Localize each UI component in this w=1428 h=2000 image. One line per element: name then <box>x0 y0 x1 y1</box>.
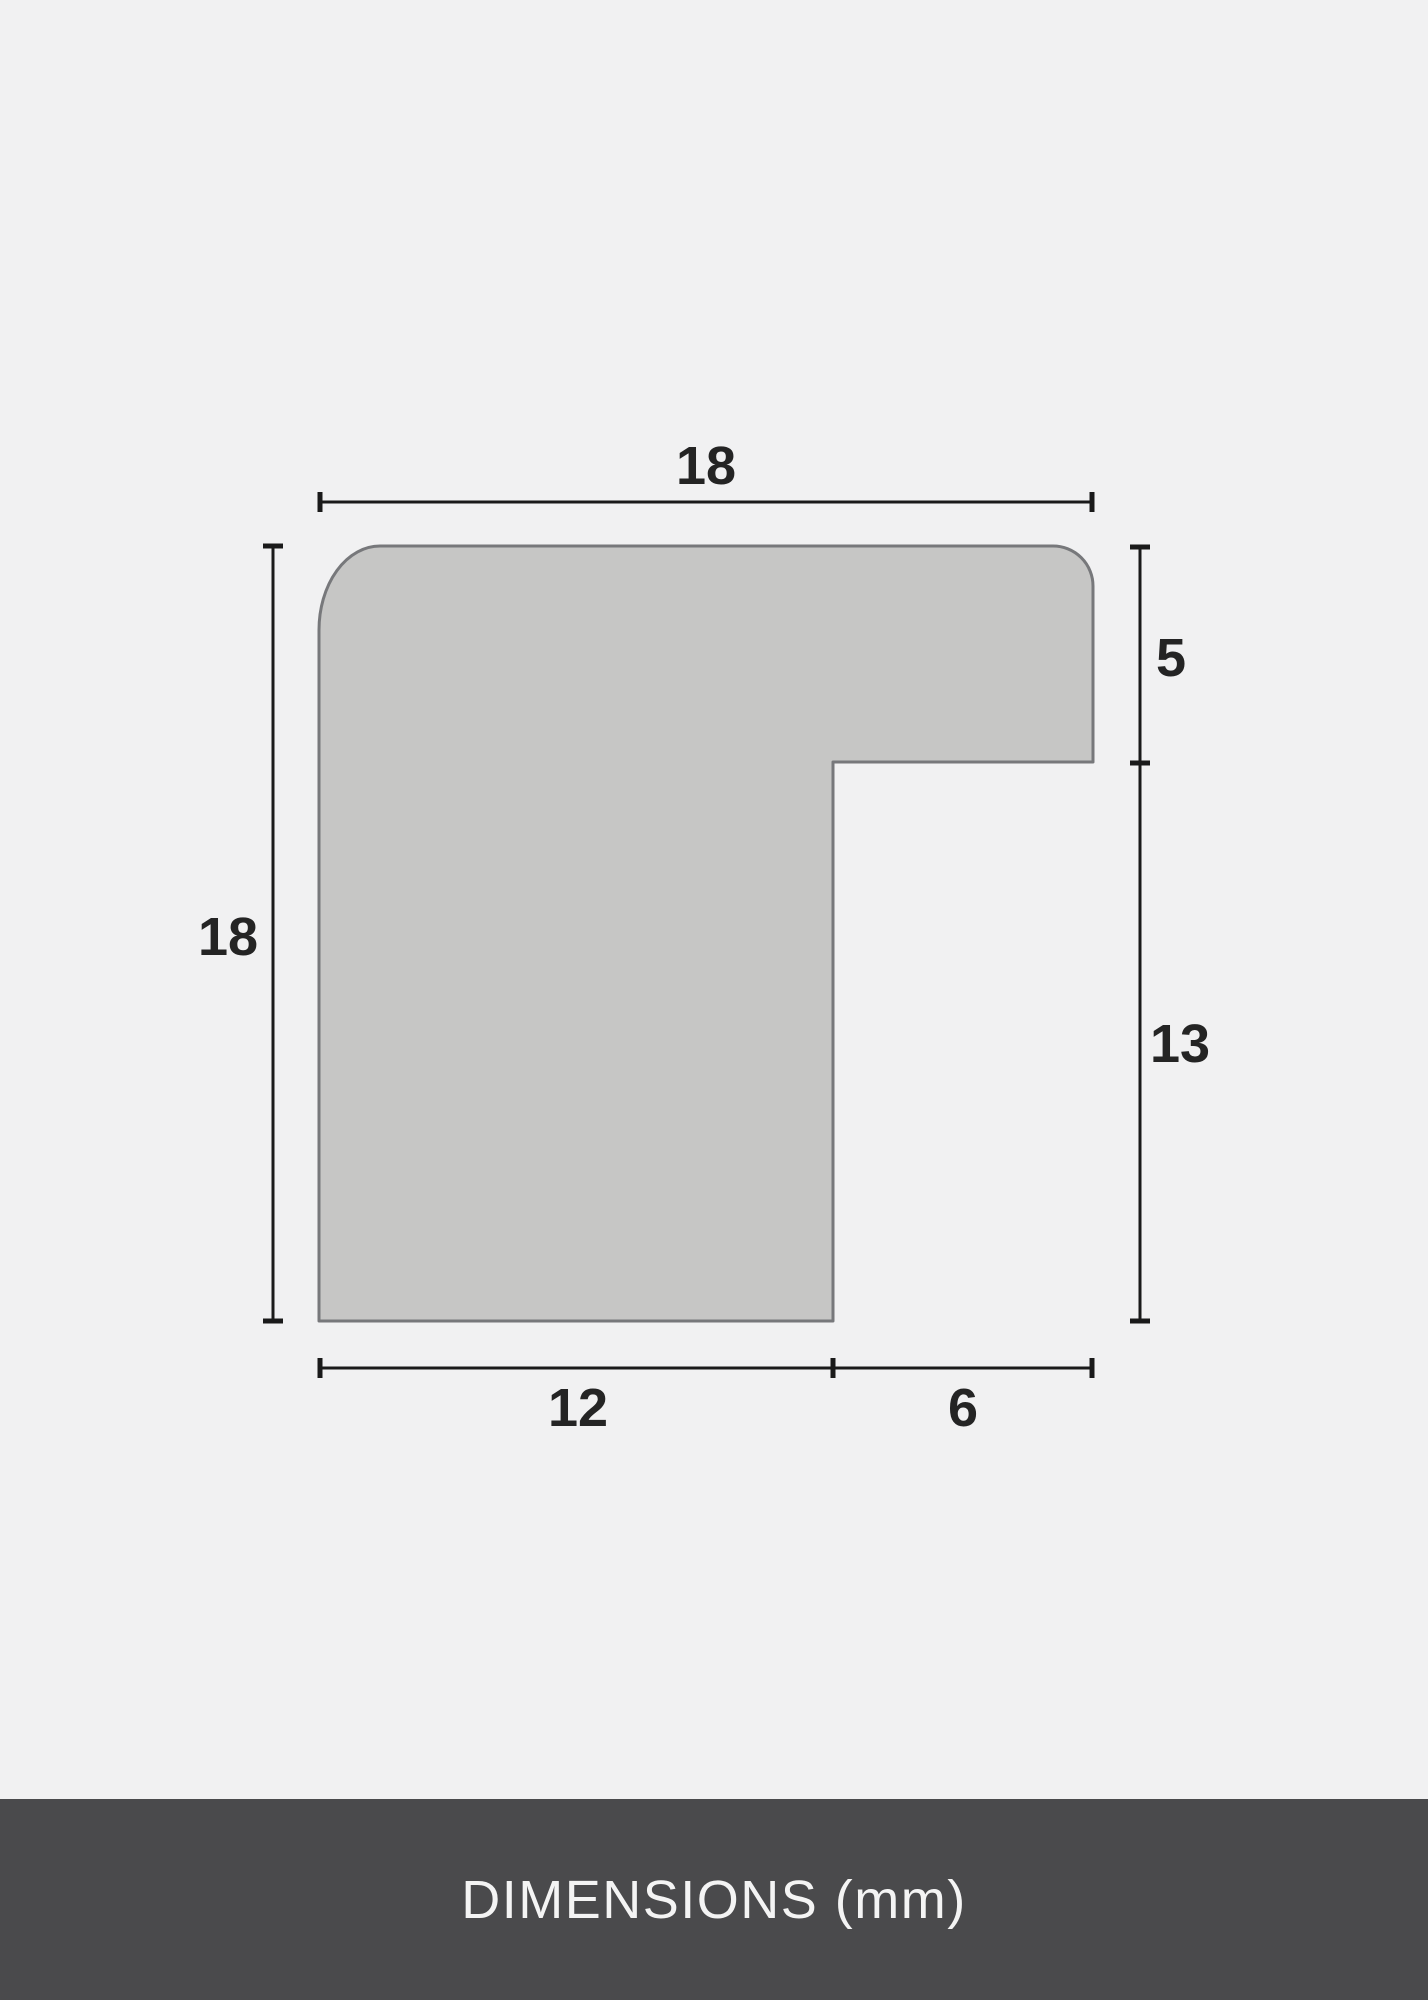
dim-label-left-height: 18 <box>198 907 258 967</box>
dim-label-right-lower: 13 <box>1150 1014 1210 1074</box>
dimension-top-width: 18 <box>320 436 1092 512</box>
drawing-svg: 18 18 5 13 <box>0 0 1428 1799</box>
footer-title: DIMENSIONS (mm) <box>461 1869 966 1931</box>
profile-cross-section-shape <box>319 546 1093 1321</box>
profile-dimension-drawing: 18 18 5 13 <box>0 0 1428 1799</box>
dimension-right-heights: 5 13 <box>1130 547 1210 1321</box>
dimension-left-height: 18 <box>198 546 283 1321</box>
dimension-bottom-widths: 12 6 <box>320 1358 1092 1438</box>
dim-label-bottom-outer: 6 <box>948 1378 978 1438</box>
footer-bar: DIMENSIONS (mm) <box>0 1799 1428 2000</box>
page: 18 18 5 13 <box>0 0 1428 2000</box>
dim-label-bottom-inner: 12 <box>548 1378 608 1438</box>
dim-label-top-width: 18 <box>676 436 736 496</box>
dim-label-right-upper: 5 <box>1156 628 1186 688</box>
